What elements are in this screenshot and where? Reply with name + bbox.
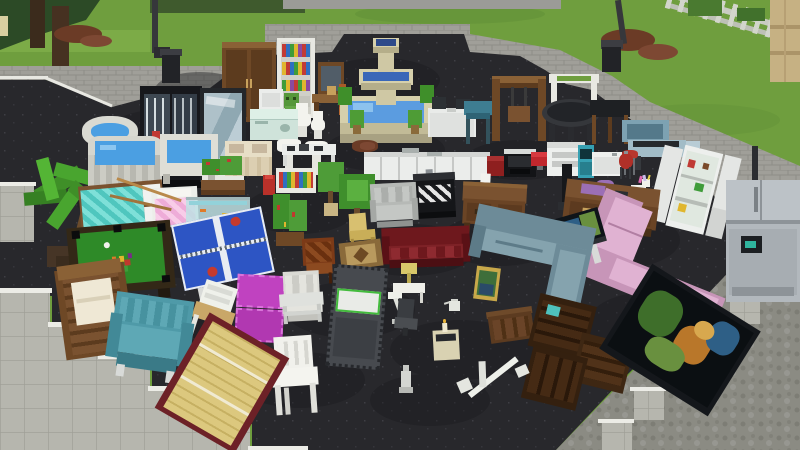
fountain[interactable]	[338, 38, 434, 150]
small-white-vase[interactable]	[394, 360, 418, 398]
gold-picture-frame[interactable]	[473, 266, 501, 302]
candle-box[interactable]	[429, 316, 463, 364]
mint-freezer-chest[interactable]	[250, 109, 298, 140]
small-tree-right	[737, 8, 765, 21]
black-kitchen-island[interactable]	[413, 172, 457, 221]
wooden-swing-pergola[interactable]	[492, 76, 546, 144]
plant-shelf-cart[interactable]	[198, 156, 248, 198]
small-tree-left	[688, 0, 722, 16]
small-white-bookshelf[interactable]	[276, 168, 316, 193]
small-white-cabinet[interactable]	[259, 89, 283, 111]
sandstone-wall	[770, 0, 800, 82]
blue-metal-table[interactable]	[464, 101, 492, 145]
white-side-table[interactable]	[279, 292, 325, 326]
game-viewport	[0, 0, 800, 450]
lamp-post-right	[596, 0, 632, 84]
toilet-small[interactable]	[310, 111, 326, 140]
long-gray-rug[interactable]	[326, 264, 389, 370]
watering-can[interactable]	[444, 295, 466, 315]
furniture-items-layer	[0, 0, 800, 450]
lamp-post-left	[138, 0, 184, 94]
office-chair[interactable]	[391, 298, 424, 337]
